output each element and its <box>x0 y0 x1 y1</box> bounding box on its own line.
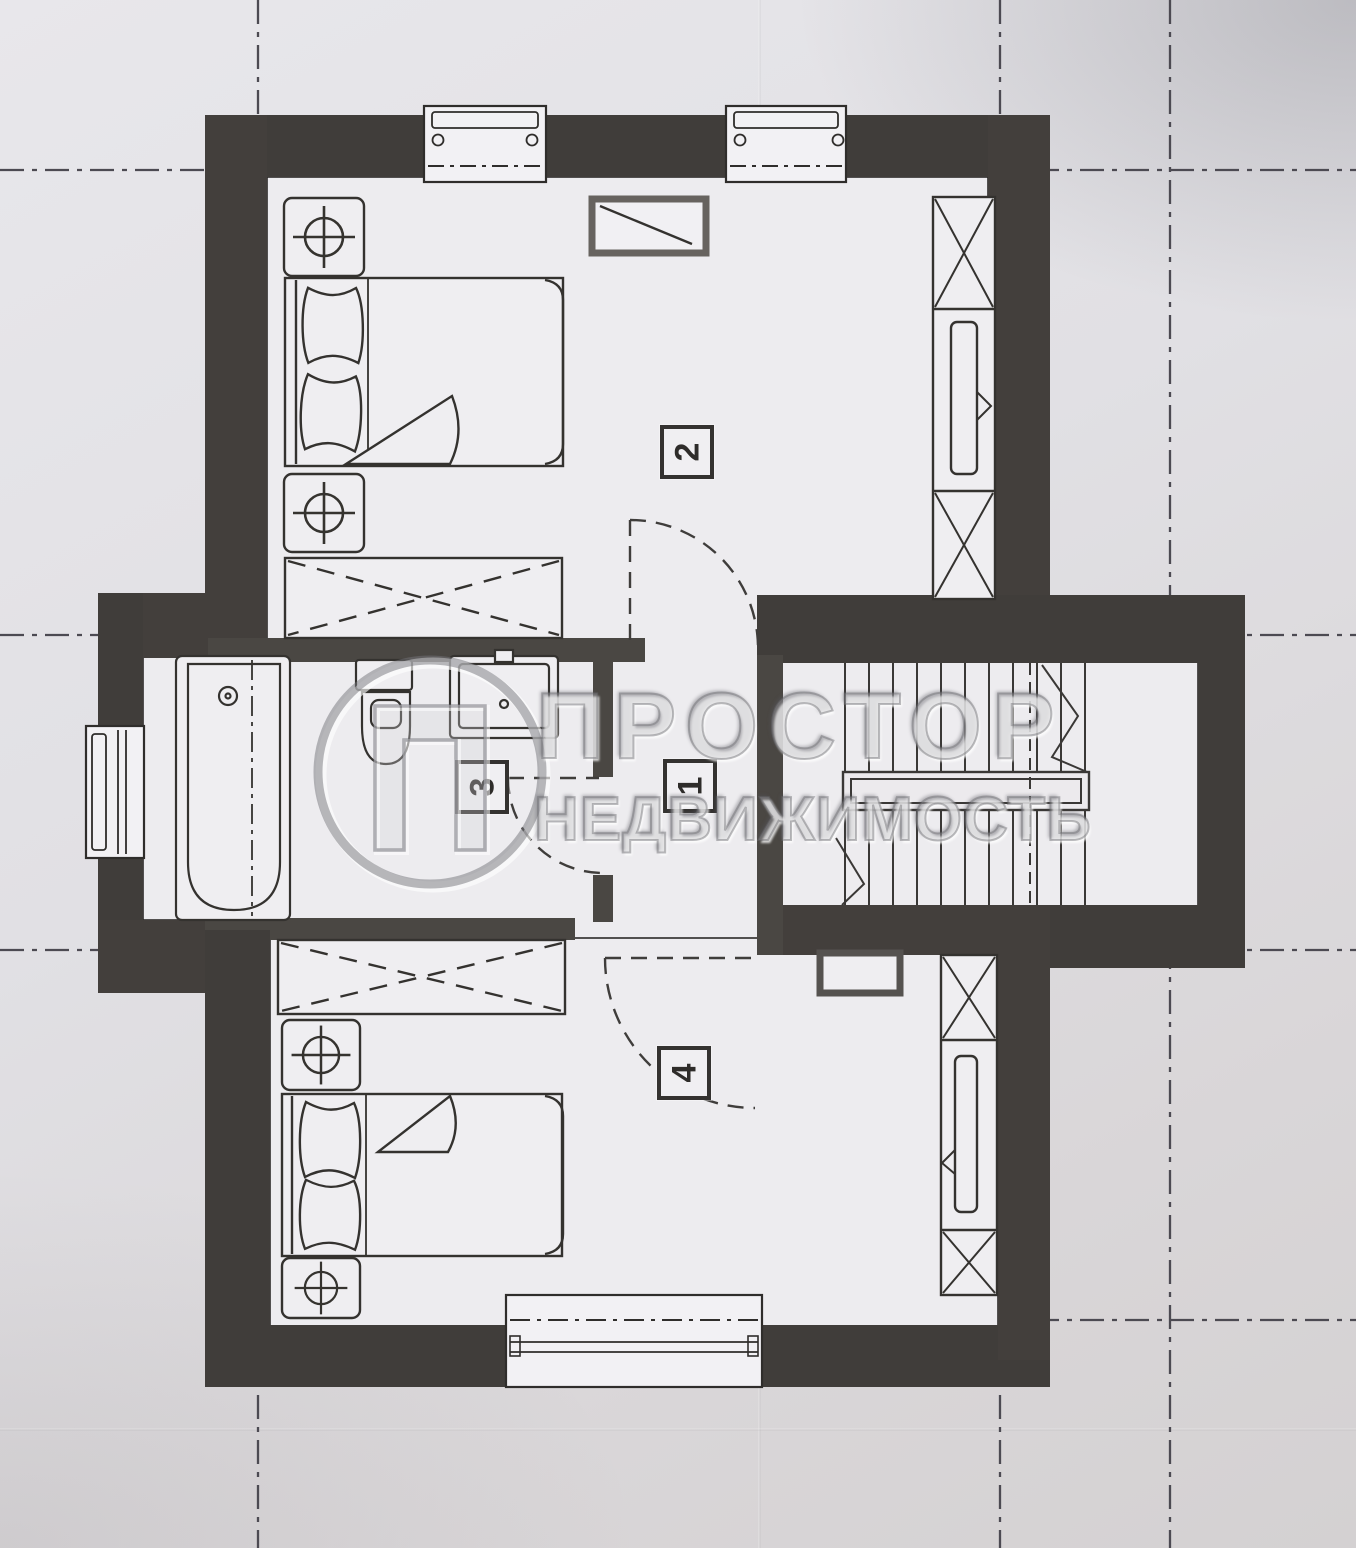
wall-right-wing-bottom <box>1050 905 1245 968</box>
wall-partition-bath-hall-b <box>593 875 613 922</box>
wall-top-right-wing <box>757 595 1245 663</box>
room-number: 4 <box>667 1064 701 1083</box>
room-label-2: 2 <box>660 425 714 479</box>
pillow-icon <box>302 287 364 364</box>
floor-door-gap-top <box>645 595 757 663</box>
room-label-3: 3 <box>455 760 509 814</box>
vent-niche-icon <box>592 199 706 253</box>
wall-right-top-block <box>988 115 1050 660</box>
pillow-icon <box>300 1180 360 1250</box>
bathtub-icon <box>176 656 290 920</box>
room-number: 3 <box>465 778 499 797</box>
wall-top-exterior <box>205 115 1050 177</box>
washbasin-icon <box>450 650 558 738</box>
tall-wardrobe-icon <box>933 197 995 599</box>
room-label-1: 1 <box>663 759 717 813</box>
vent-niche-icon <box>820 953 900 993</box>
room-label-4: 4 <box>657 1046 711 1100</box>
scanned-floor-plan-page: ПРОСТОР НЕДВИЖИМОСТЬ 2 3 1 4 <box>0 0 1356 1548</box>
wardrobe-dashed-x-icon <box>278 940 565 1014</box>
wall-left-bottom-block <box>205 930 270 1360</box>
pillow-icon <box>300 1102 360 1178</box>
wall-left-top-block <box>205 115 267 660</box>
double-bed-icon <box>282 1094 563 1256</box>
room-number: 2 <box>670 443 704 462</box>
stair-handrail <box>843 772 1089 810</box>
room-number: 1 <box>673 777 707 796</box>
toilet-icon <box>356 660 412 764</box>
tall-wardrobe-icon <box>941 955 997 1295</box>
window-left-wing <box>86 726 144 858</box>
wardrobe-dashed-x-icon <box>285 558 562 638</box>
wall-left-wing-bottom <box>98 920 208 993</box>
window-bottom <box>506 1295 762 1387</box>
wall-partition-hall-stair <box>757 655 783 955</box>
double-bed-icon <box>285 278 563 466</box>
window-top-left <box>424 106 546 182</box>
wall-right-bottom-block <box>998 930 1050 1360</box>
pillow-icon <box>300 374 362 452</box>
wall-partition-bath-hall-a <box>593 655 613 777</box>
window-top-right <box>726 106 846 182</box>
